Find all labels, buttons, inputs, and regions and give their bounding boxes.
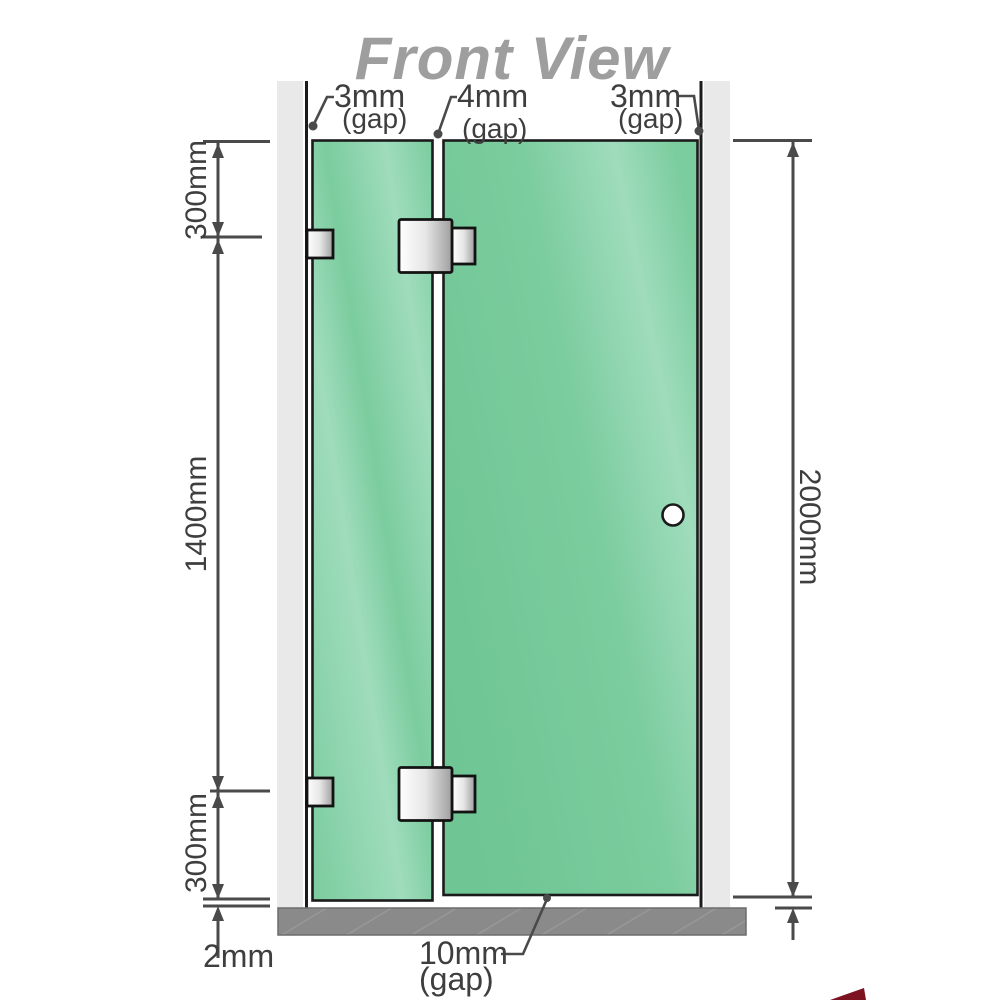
gap-left-unit: (gap)	[342, 103, 407, 134]
leader-dot-left	[309, 122, 318, 131]
top-hinge	[399, 220, 475, 273]
gap-right-unit: (gap)	[618, 103, 683, 134]
diagram-canvas: Front View	[0, 0, 1000, 1000]
arrow-up	[787, 908, 799, 923]
arrow-down	[787, 882, 799, 897]
arrow-down	[212, 884, 224, 899]
leader-gap-middle	[438, 97, 457, 134]
arrow-up	[212, 793, 224, 808]
bottom-hinge-plate	[399, 768, 452, 821]
floor-gap-left-label: 2mm	[203, 938, 274, 974]
bottom-gap-unit: (gap)	[419, 961, 494, 997]
door-handle-knob	[663, 505, 684, 526]
leader-dot-bottom	[543, 894, 551, 902]
bottom-hinge-door-tab	[452, 776, 475, 812]
right-wall	[704, 81, 730, 908]
floor	[278, 906, 770, 936]
arrow-down	[212, 222, 224, 237]
top-wall-bracket	[307, 230, 333, 258]
arrow-up	[212, 906, 224, 921]
leader-dot-middle	[434, 130, 443, 139]
segment-bottom-label: 300mm	[180, 793, 213, 893]
bottom-hinge	[399, 768, 475, 821]
corner-logo-fragment	[830, 988, 866, 1000]
arrow-up	[212, 143, 224, 158]
bottom-wall-bracket	[307, 778, 333, 806]
arrow-down	[212, 776, 224, 791]
segment-top-label: 300mm	[180, 140, 213, 240]
total-height-label: 2000mm	[793, 469, 826, 586]
arrow-up	[212, 239, 224, 254]
floor-slab	[278, 908, 746, 935]
door-glass-panel	[444, 141, 698, 896]
gap-middle-unit: (gap)	[462, 113, 527, 144]
front-view-diagram: Front View	[0, 0, 1000, 1000]
gap-middle-value: 4mm	[457, 78, 528, 114]
top-hinge-door-tab	[452, 228, 475, 264]
arrow-up	[787, 142, 799, 157]
glass-panels	[313, 141, 698, 901]
segment-middle-label: 1400mm	[180, 456, 213, 573]
leader-dot-right	[695, 127, 704, 136]
leader-gap-left	[313, 97, 334, 126]
top-hinge-plate	[399, 220, 452, 273]
left-wall	[277, 81, 303, 908]
